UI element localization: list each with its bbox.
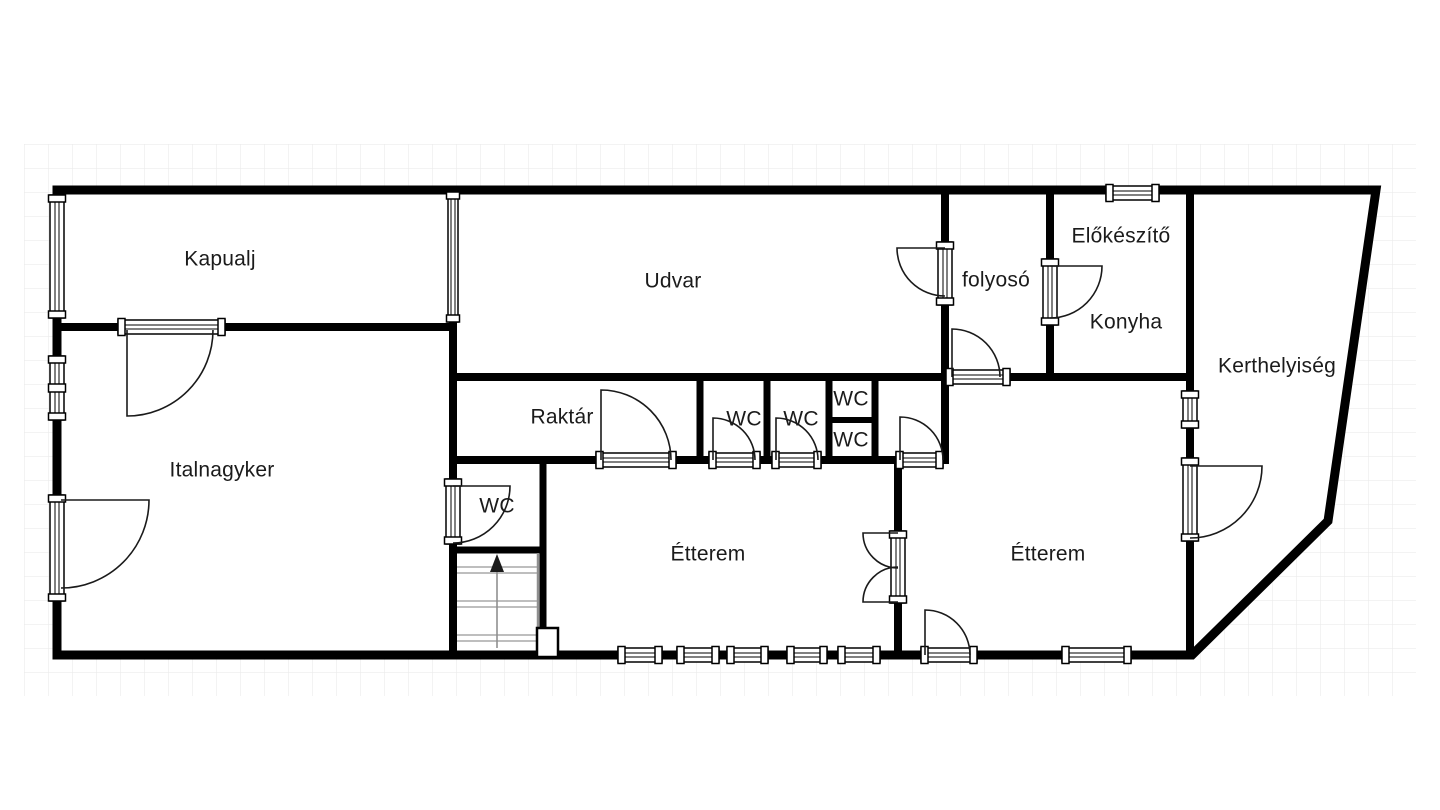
room-label-wc-upper: WC <box>833 389 868 410</box>
window-symbol <box>677 647 719 664</box>
window-symbol <box>1106 185 1159 202</box>
room-label-konyha: Konyha <box>1090 312 1162 333</box>
window-symbol <box>772 452 821 469</box>
window-symbol <box>1062 647 1131 664</box>
room-label-etterem-left: Étterem <box>671 544 746 565</box>
window-symbol <box>618 647 662 664</box>
window-symbol <box>118 319 225 336</box>
room-label-wc-lower: WC <box>833 430 868 451</box>
window-symbol <box>838 647 880 664</box>
window-symbol <box>1182 391 1199 428</box>
room-label-kapualj: Kapualj <box>184 249 255 270</box>
window-symbol <box>896 452 943 469</box>
window-symbol <box>49 495 66 601</box>
room-label-wc-stall-2: WC <box>783 409 818 430</box>
floor-plan-drawing <box>0 0 1440 810</box>
window-symbol <box>921 647 977 664</box>
room-label-elokeszito: Előkészítő <box>1072 226 1171 247</box>
room-label-raktar: Raktár <box>530 407 593 428</box>
window-symbol <box>727 647 768 664</box>
room-label-udvar: Udvar <box>644 271 701 292</box>
room-label-italnagyker: Italnagyker <box>170 460 275 481</box>
window-symbol <box>1182 458 1199 541</box>
window-symbol <box>49 356 66 420</box>
window-symbol <box>447 192 460 322</box>
room-label-folyoso: folyosó <box>962 270 1030 291</box>
stair-bottom-step <box>537 628 558 657</box>
window-symbol <box>445 479 462 544</box>
window-symbol <box>1042 259 1059 325</box>
window-symbol <box>709 452 760 469</box>
room-label-wc-stairs: WC <box>479 496 514 517</box>
room-label-etterem-right: Étterem <box>1011 544 1086 565</box>
room-label-wc-stall-1: WC <box>726 409 761 430</box>
window-symbol <box>596 452 676 469</box>
floor-plan-page: Kapualj Udvar folyosó Előkészítő Konyha … <box>0 0 1440 810</box>
window-symbol <box>49 195 66 318</box>
room-label-kerthelyiseg: Kerthelyiség <box>1218 356 1336 377</box>
window-symbol <box>787 647 827 664</box>
